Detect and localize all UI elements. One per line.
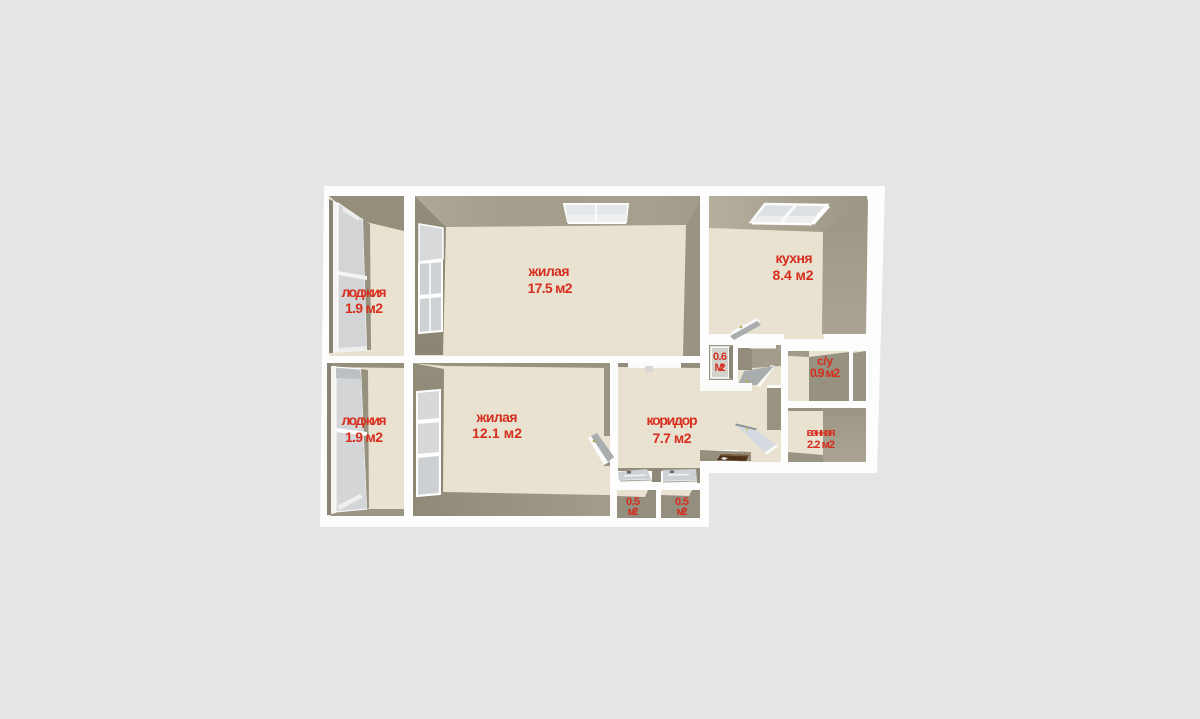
svg-text:м2: м2 xyxy=(677,506,688,518)
svg-text:2.2 м2: 2.2 м2 xyxy=(807,439,835,451)
svg-text:жилая: жилая xyxy=(476,409,518,425)
svg-text:1.9 м2: 1.9 м2 xyxy=(345,429,383,445)
svg-text:17.5 м2: 17.5 м2 xyxy=(528,280,573,296)
svg-text:8.4 м2: 8.4 м2 xyxy=(773,267,814,283)
svg-text:коридор: коридор xyxy=(647,412,698,428)
svg-text:7.7 м2: 7.7 м2 xyxy=(653,430,692,446)
svg-text:лоджия: лоджия xyxy=(342,284,387,300)
svg-text:0.9 м2: 0.9 м2 xyxy=(810,366,840,380)
svg-text:12.1 м2: 12.1 м2 xyxy=(472,425,522,441)
svg-text:м2: м2 xyxy=(628,506,639,518)
svg-text:М2: М2 xyxy=(715,362,726,374)
svg-text:лоджия: лоджия xyxy=(342,412,387,428)
svg-text:жилая: жилая xyxy=(528,263,570,279)
svg-text:1.9 м2: 1.9 м2 xyxy=(345,300,383,316)
svg-text:ванная: ванная xyxy=(807,427,836,439)
svg-text:кухня: кухня xyxy=(776,250,813,266)
